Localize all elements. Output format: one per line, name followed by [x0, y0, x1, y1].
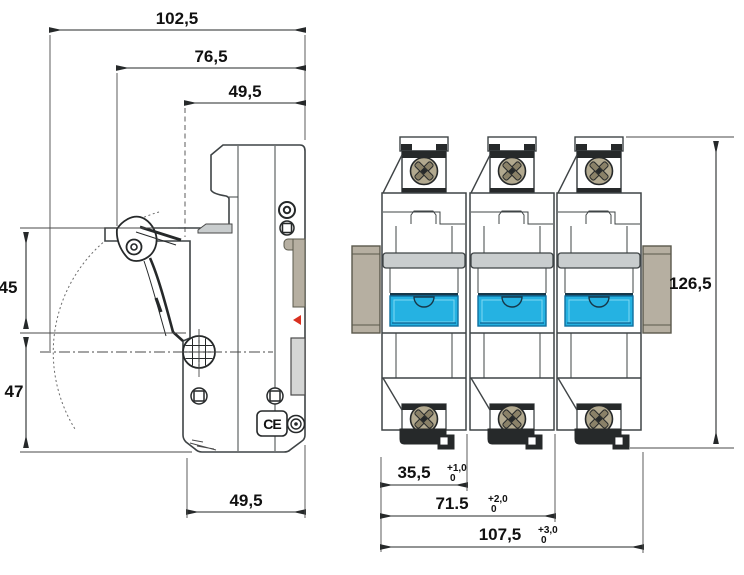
dim-tolerance-lower: 0	[541, 535, 547, 546]
ce-mark: CE	[263, 416, 281, 432]
rail-top-flange	[293, 239, 305, 307]
dim-label: 107,5	[479, 525, 522, 544]
dim-lower-height: 47	[5, 338, 192, 452]
dim-label: 102,5	[156, 9, 199, 28]
dim-one-pole: 35,5 +1,0 0	[381, 434, 467, 552]
dim-tolerance-lower: 0	[450, 473, 456, 484]
pole-module-1	[382, 137, 466, 449]
din-rail-right	[643, 246, 671, 333]
pole-module-2	[470, 137, 554, 449]
dim-label: 126,5	[669, 274, 712, 293]
side-view: CE	[40, 145, 305, 452]
dim-label: 71.5	[435, 494, 468, 513]
dim-bottom-width: 49,5	[187, 445, 305, 518]
ledge-pad	[198, 224, 232, 233]
dim-label: 47	[5, 382, 24, 401]
pole-module-3	[557, 137, 641, 449]
dim-label: 49,5	[228, 82, 261, 101]
dim-label: 76,5	[194, 47, 227, 66]
technical-drawing: CE	[0, 0, 744, 575]
din-rail-left	[352, 246, 380, 333]
rail-bottom-flange	[291, 338, 305, 395]
dim-label: 49,5	[229, 491, 262, 510]
drawing-canvas: CE	[0, 0, 744, 575]
dim-label: 35,5	[397, 463, 430, 482]
dim-height: 126,5	[626, 137, 734, 448]
front-view	[352, 137, 671, 449]
rail-hook	[284, 239, 293, 250]
dim-label: 45	[0, 278, 17, 297]
dim-tolerance-lower: 0	[491, 504, 497, 515]
